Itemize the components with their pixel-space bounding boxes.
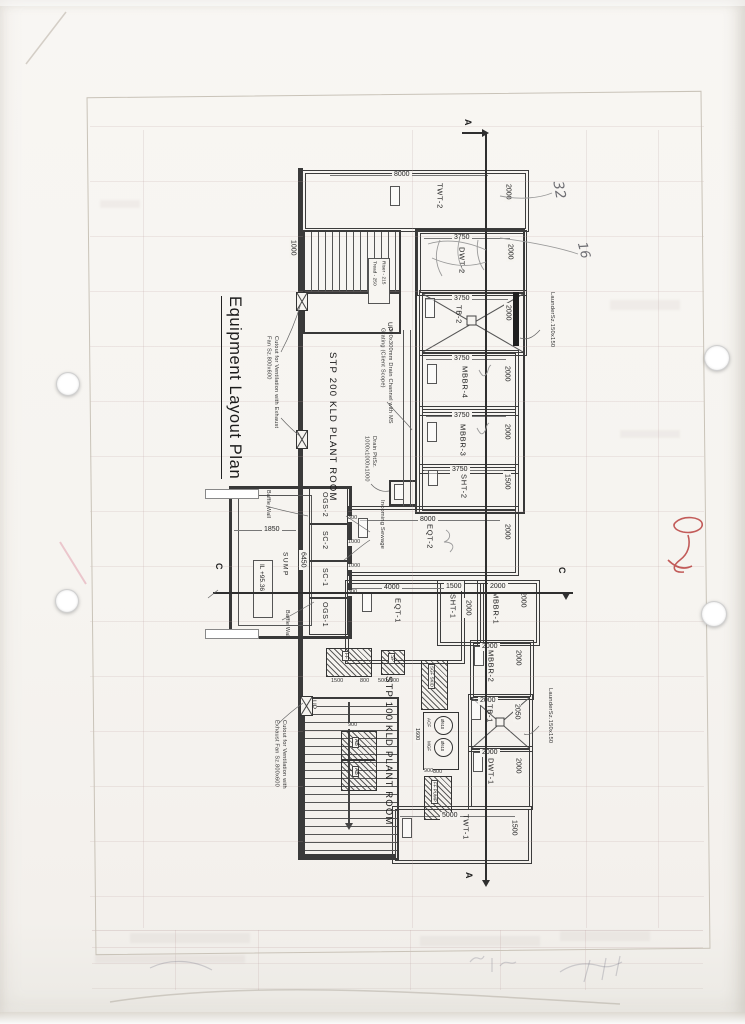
label-mbbr1: MBBR-1 (492, 592, 500, 625)
dim-filter-l: 1600 (414, 726, 420, 742)
dim-dwt2-wid: 2000 (506, 242, 514, 262)
dim-filter-w: 800 (433, 770, 442, 776)
dimline (352, 588, 452, 589)
dim-ff-len: 1500 (331, 679, 343, 685)
stp100-label: STP 100 KLD PLANT ROOM (383, 676, 394, 826)
equip-skid-bottom-label: FF PUMP (431, 780, 438, 804)
section-c-line (213, 592, 573, 594)
showthrough-line (92, 963, 703, 964)
label-twt2: TWT-2 (436, 183, 444, 209)
equip-ff (326, 648, 372, 677)
label-mgf: MGF (426, 741, 431, 751)
page-corner-fold (26, 12, 66, 64)
dim-tb2-len: 3750 (452, 295, 472, 303)
dim-twt1-len: 5000 (440, 812, 460, 820)
dim-dwt2-len: 3750 (452, 234, 472, 242)
dim-twt2-wid: 2000 (504, 182, 512, 202)
drawing-title: Equipment Layout Plan (221, 296, 244, 479)
drain-channel (403, 330, 411, 506)
filter-mgf-dia: Ø610 (440, 741, 444, 751)
dim-sht2-wid: 1500 (503, 472, 511, 492)
equip-ab2-label: AB (352, 766, 359, 777)
label-dwt2: DWT-2 (458, 247, 466, 274)
showthrough-smudge (95, 955, 245, 963)
dim-eqt1-len: 4000 (382, 584, 402, 592)
level-box (402, 818, 412, 838)
level-box (428, 470, 438, 486)
vent-note-bottom: Cutout for Ventilation with Exhaust Fan … (271, 720, 287, 808)
punch-hole (701, 601, 727, 627)
dim-dwt1-wid: 2000 (514, 756, 522, 776)
dim-eqt2-len: 8000 (418, 516, 438, 524)
dim-tb2-wid: 2000 (504, 303, 512, 323)
label-tb2: TB-2 (455, 305, 463, 324)
wall-opening (205, 629, 259, 639)
dim-twt1-wid: 1500 (510, 818, 518, 838)
dim-mbbr4-wid: 2000 (503, 364, 511, 384)
level-box (358, 518, 368, 538)
x-mark-icon (301, 697, 312, 715)
equip-ab-block (341, 731, 377, 791)
dim-cell-1: 300 (348, 516, 357, 522)
dim-sht2-len: 3750 (450, 466, 470, 474)
incoming-sewage-note: Incoming Sewage (369, 500, 385, 562)
label-eqt2: EQT-2 (426, 524, 434, 549)
label-tb1: TB-1 (486, 704, 494, 723)
level-box (427, 422, 437, 442)
vent-cutout-marker (296, 430, 308, 449)
sump-label: SUMP (281, 552, 288, 577)
label-sc2: SC-2 (321, 531, 328, 550)
label-twt1: TWT-1 (462, 814, 470, 840)
label-sht1: SHT-1 (449, 594, 457, 619)
level-box (394, 484, 404, 500)
label-eqt1: EQT-1 (394, 598, 402, 623)
dim-sht1-len: 1500 (444, 583, 464, 591)
label-acf: ACF (426, 718, 431, 727)
label-mbbr2: MBBR-2 (487, 650, 495, 683)
dim-sht1-wid: 2000 (464, 598, 472, 618)
launder-label: Launder (547, 688, 553, 711)
riser-label: Riser - 215 (379, 261, 386, 284)
equip-ab-divider (341, 759, 375, 761)
label-ogs1: OGS-1 (321, 602, 328, 627)
handwritten-mark-1: 32 (549, 180, 568, 200)
dim-mbbr3-len: 3750 (452, 412, 472, 420)
drain-channel-note: 300x300mm Drain Channel with MS Grating … (377, 328, 393, 436)
scan-edge-bottom (0, 1012, 745, 1024)
label-sc1: SC-1 (321, 568, 328, 587)
dim-twt2-len: 8000 (392, 171, 412, 179)
tread-riser-box: Tread - 250 Riser - 215 (368, 258, 390, 304)
cell-sc2 (309, 523, 348, 562)
label-dwt1: DWT-1 (487, 758, 495, 785)
tread-label: Tread - 250 (370, 261, 377, 286)
equip-skid-top (421, 660, 448, 710)
launder-size: Sz.150x150 (549, 315, 555, 348)
dim-cell-3: 1000 (348, 564, 360, 570)
level-box (425, 298, 435, 318)
level-box (390, 186, 400, 206)
section-a-top-label: A (463, 119, 473, 126)
equip-sp-label: SP (388, 653, 395, 664)
section-a-bottom-label: A (464, 872, 474, 879)
dim-ab: 900 (348, 723, 357, 729)
x-mark-icon (297, 293, 307, 310)
stairs-arrow (345, 823, 353, 830)
level-box (362, 592, 372, 612)
showthrough-line (92, 988, 703, 989)
drain-pit-label: Drain Pit (371, 436, 377, 459)
dim-ff-wid: 800 (360, 679, 369, 685)
faint-pink-mark (60, 542, 86, 584)
cell-ogs1 (309, 597, 348, 635)
dim-mbbr2-wid: 2000 (514, 648, 522, 668)
vent-cutout-marker (296, 292, 308, 311)
scan-edge-top (0, 0, 745, 6)
dim-eqt2-wid: 2000 (503, 522, 511, 542)
dim-mbbr4-len: 3750 (452, 355, 472, 363)
launder-note-top: Launder​ Sz.150x150 (539, 292, 555, 350)
filter-acf-dia: Ø610 (440, 719, 444, 729)
punch-hole (55, 589, 79, 613)
drain-pit-note: Drain Pit​ Sz. 1000x1000x1000 (361, 436, 377, 508)
label-sht2: SHT-2 (460, 474, 468, 499)
section-c-right-label: C (557, 567, 567, 574)
vent-cutout-marker (300, 696, 313, 716)
equip-ab1-label: AB (352, 737, 359, 748)
stp200-label: STP 200 KLD PLANT ROOM (327, 352, 338, 502)
invert-level-box: IL +95.36 (253, 560, 273, 618)
level-box (427, 364, 437, 384)
wall-opening (205, 489, 259, 499)
launder-label: Launder (549, 292, 555, 315)
dim-cell-2: 1000 (348, 540, 360, 546)
section-a-line (485, 132, 487, 880)
wrinkle-shadow (110, 990, 620, 1004)
scanned-page: Equipment Layout Plan Cutout for Ventila… (0, 0, 745, 1024)
dim-corridor: 1000 (289, 238, 297, 258)
equip-skid-top-label: SGF SKID (428, 664, 435, 689)
baffle-wall-top: Baffle Wall (255, 490, 271, 534)
section-c-arrow (562, 593, 570, 600)
section-c-left-label: C (214, 563, 224, 570)
launder-size: Sz.150x150 (547, 711, 553, 744)
x-mark-icon (297, 431, 307, 448)
label-mbbr4: MBBR-4 (461, 366, 469, 399)
dim-mbbr3-wid: 2000 (503, 422, 511, 442)
dim-mbbr1-len: 2000 (488, 583, 508, 591)
equip-ff-label: FF (342, 651, 349, 661)
dim-pump: 900 (424, 769, 433, 775)
invert-level: IL +95.36 (258, 564, 265, 591)
punch-hole (704, 345, 730, 371)
dim-dwt1-len: 2000 (480, 749, 500, 757)
punch-hole (56, 372, 80, 396)
vent-note-top: Cutout for Ventilation with Exhaust Fan … (263, 336, 279, 436)
baffle-wall-bottom: Baffle Wall (274, 610, 290, 654)
launder-bar (513, 292, 519, 346)
launder-note-bottom: Launder​ Sz.150x150 (537, 688, 553, 746)
dim-tb1-wid: 2050 (513, 702, 521, 722)
section-a-bottom-arrow (482, 880, 490, 887)
dim-sump-length: 6450 (299, 550, 307, 570)
label-mbbr3: MBBR-3 (459, 424, 467, 457)
